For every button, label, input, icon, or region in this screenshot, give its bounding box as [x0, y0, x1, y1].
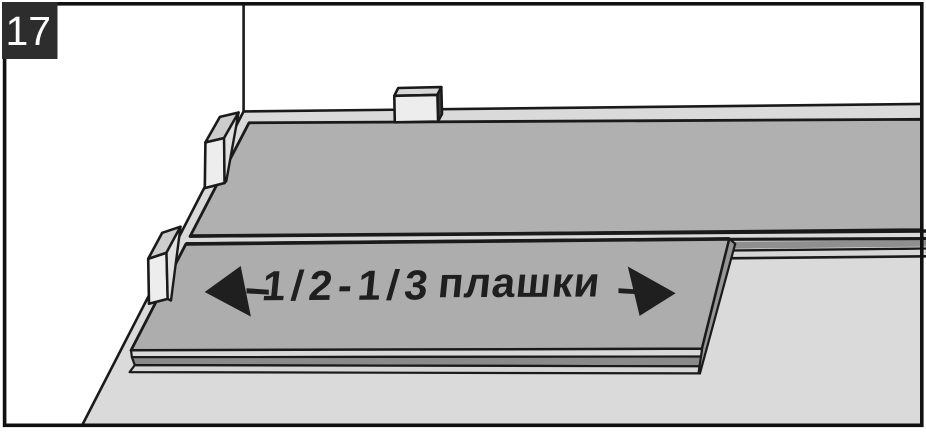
svg-text:1/2-1/3 плашки: 1/2-1/3 плашки: [260, 259, 603, 310]
svg-text:17: 17: [6, 8, 52, 54]
